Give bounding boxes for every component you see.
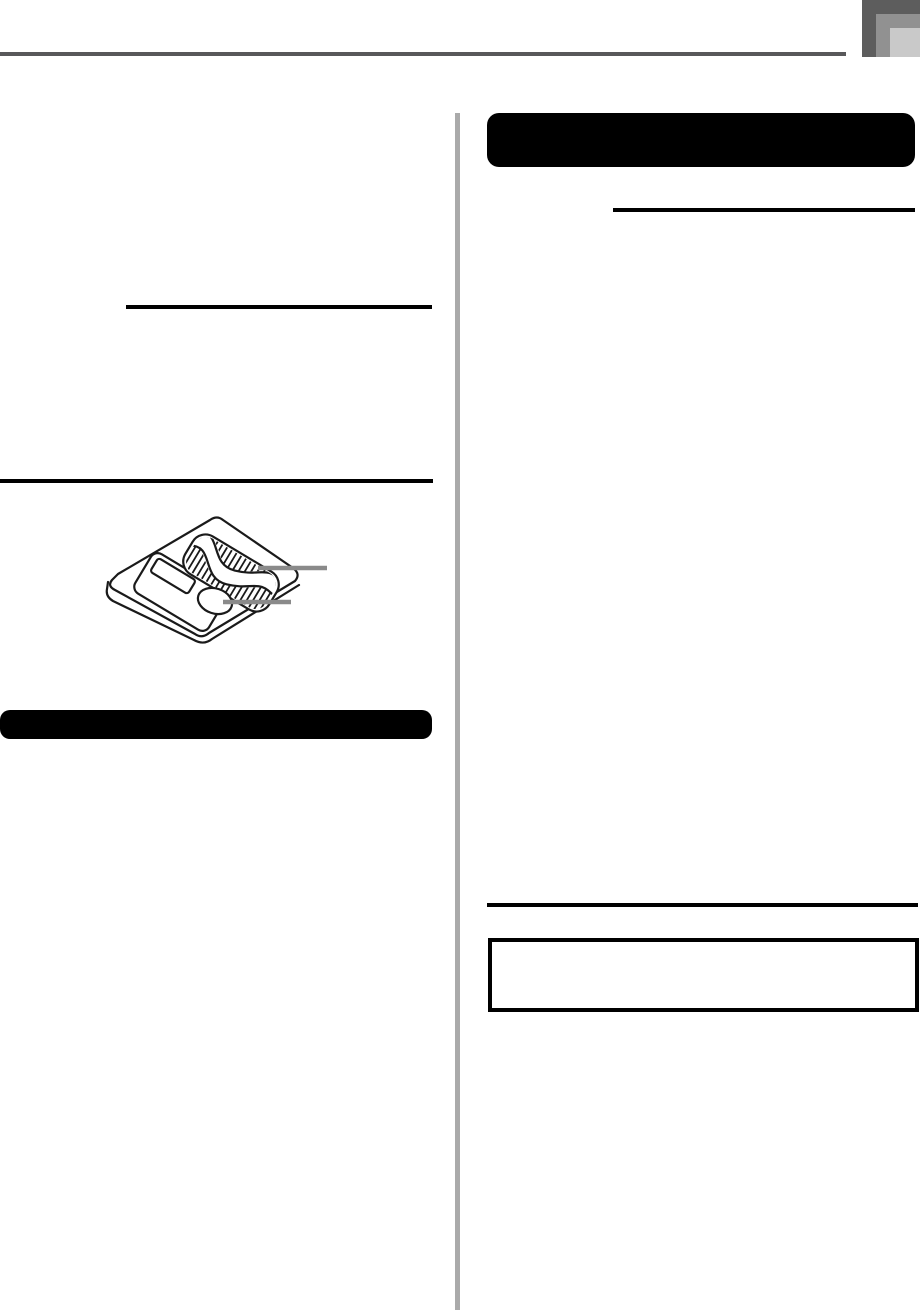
section-header-bar-right — [487, 113, 915, 167]
divider-rule-right — [487, 903, 918, 907]
manual-page — [0, 0, 920, 1315]
note-box — [488, 938, 919, 1012]
section-rule-left — [0, 479, 433, 483]
memory-card-illustration — [95, 513, 331, 648]
top-header-rule — [0, 52, 846, 56]
column-separator — [455, 113, 460, 1310]
section-header-bar-left — [0, 710, 432, 739]
subheading-rule-right — [613, 208, 915, 212]
subheading-rule-left — [126, 305, 432, 309]
corner-tab-light-square — [890, 28, 920, 57]
